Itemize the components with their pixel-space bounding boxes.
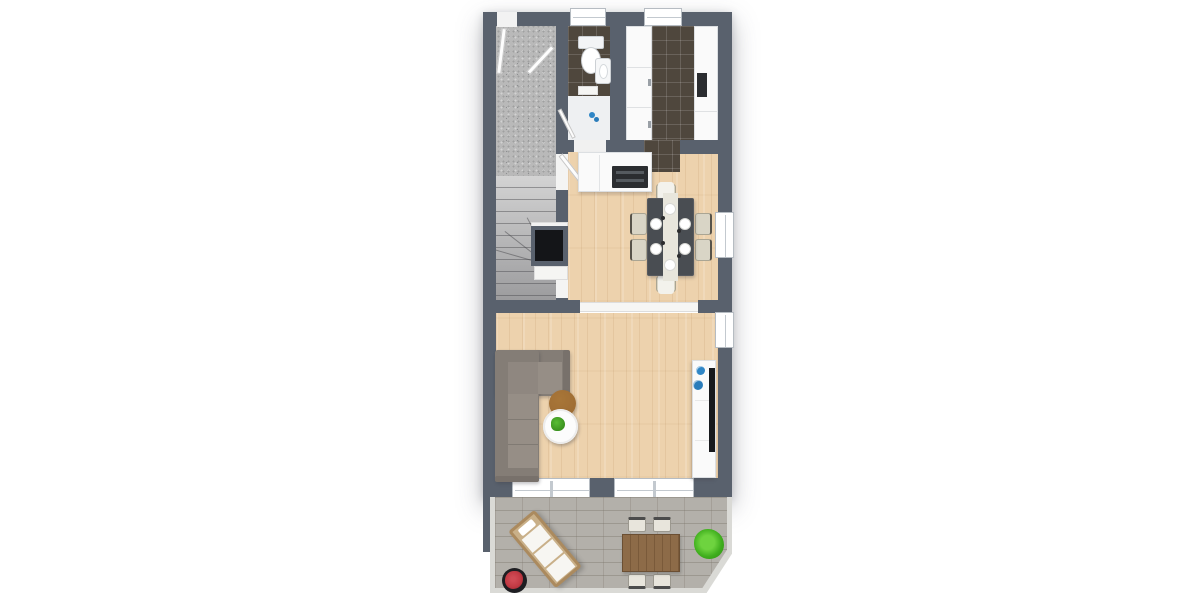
tv-panel — [709, 368, 715, 452]
cabinet-handle — [648, 79, 651, 86]
cushion-seam — [508, 444, 538, 445]
floor-plan-canvas — [0, 0, 1200, 600]
window-living-east — [715, 312, 734, 348]
wall-north — [517, 12, 570, 26]
cup — [677, 254, 681, 258]
threshold-dining-living — [580, 302, 698, 312]
sofa-armrest-south — [495, 476, 539, 482]
doorway-wc — [574, 140, 606, 152]
cup — [661, 241, 665, 245]
terrace-chair — [653, 517, 671, 532]
kitchen-counter-west — [626, 26, 652, 148]
green-shrub — [694, 529, 724, 559]
dining-chair-west — [630, 239, 647, 261]
counter-division — [695, 111, 719, 112]
blue-accessory — [594, 117, 599, 122]
fireplace-bench — [534, 266, 568, 280]
fireplace-surround — [531, 226, 568, 266]
blue-vase — [693, 380, 703, 390]
entry-door-opening — [497, 12, 517, 27]
oven-appliance — [697, 73, 707, 97]
wall-south — [590, 478, 614, 497]
window-mullion — [573, 17, 605, 18]
wall-east — [718, 347, 732, 478]
blue-vase — [696, 366, 705, 375]
wall-wc-kitchen — [610, 26, 626, 140]
wall-south — [694, 478, 732, 497]
terrace-chair — [653, 574, 671, 589]
island-division — [599, 155, 600, 191]
window-mullion — [617, 490, 693, 491]
cooktop-bar — [616, 179, 644, 182]
cup — [677, 229, 681, 233]
place-setting — [679, 243, 691, 255]
hand-basin — [595, 58, 611, 84]
place-setting — [650, 218, 662, 230]
place-setting — [650, 243, 662, 255]
place-setting — [664, 259, 676, 271]
window-mullion — [647, 17, 681, 18]
cooktop — [612, 166, 648, 188]
dining-chair-east — [695, 239, 712, 261]
sideboard-division — [695, 400, 709, 401]
wall-north — [606, 12, 644, 26]
wall-kitchen-dining — [680, 140, 718, 154]
wooden-outdoor-table — [622, 534, 680, 572]
place-setting — [679, 218, 691, 230]
room-kitchen-floor-tile — [652, 26, 694, 152]
counter-division — [627, 67, 653, 68]
potted-plant-small — [551, 417, 565, 431]
window-mullion — [725, 215, 726, 257]
dining-chair-east — [695, 213, 712, 235]
window-mullion — [515, 490, 589, 491]
cushion-seam — [508, 419, 538, 420]
kitchen-counter-east — [694, 26, 718, 148]
sofa-seat-west — [508, 394, 538, 468]
wall-east — [718, 12, 732, 213]
terrace-curb — [490, 497, 732, 593]
place-setting — [664, 203, 676, 215]
cooktop-bar — [616, 171, 644, 174]
wc-shelf — [578, 86, 598, 95]
cabinet-handle — [648, 121, 651, 128]
wall-dining-living — [483, 300, 580, 313]
terrace-chair — [628, 517, 646, 532]
dining-chair-west — [630, 213, 647, 235]
window-kitchen-north — [644, 8, 682, 26]
fireplace-firebox — [535, 230, 563, 261]
counter-division — [627, 107, 653, 108]
window-wc-north — [570, 8, 606, 26]
window-dining-east — [715, 212, 734, 258]
basin-bowl — [599, 64, 608, 79]
sofa-corner-cushion — [508, 362, 538, 394]
cup — [661, 216, 665, 220]
window-mullion — [725, 315, 726, 347]
terrace-chair — [628, 574, 646, 589]
sideboard-division — [695, 440, 709, 441]
